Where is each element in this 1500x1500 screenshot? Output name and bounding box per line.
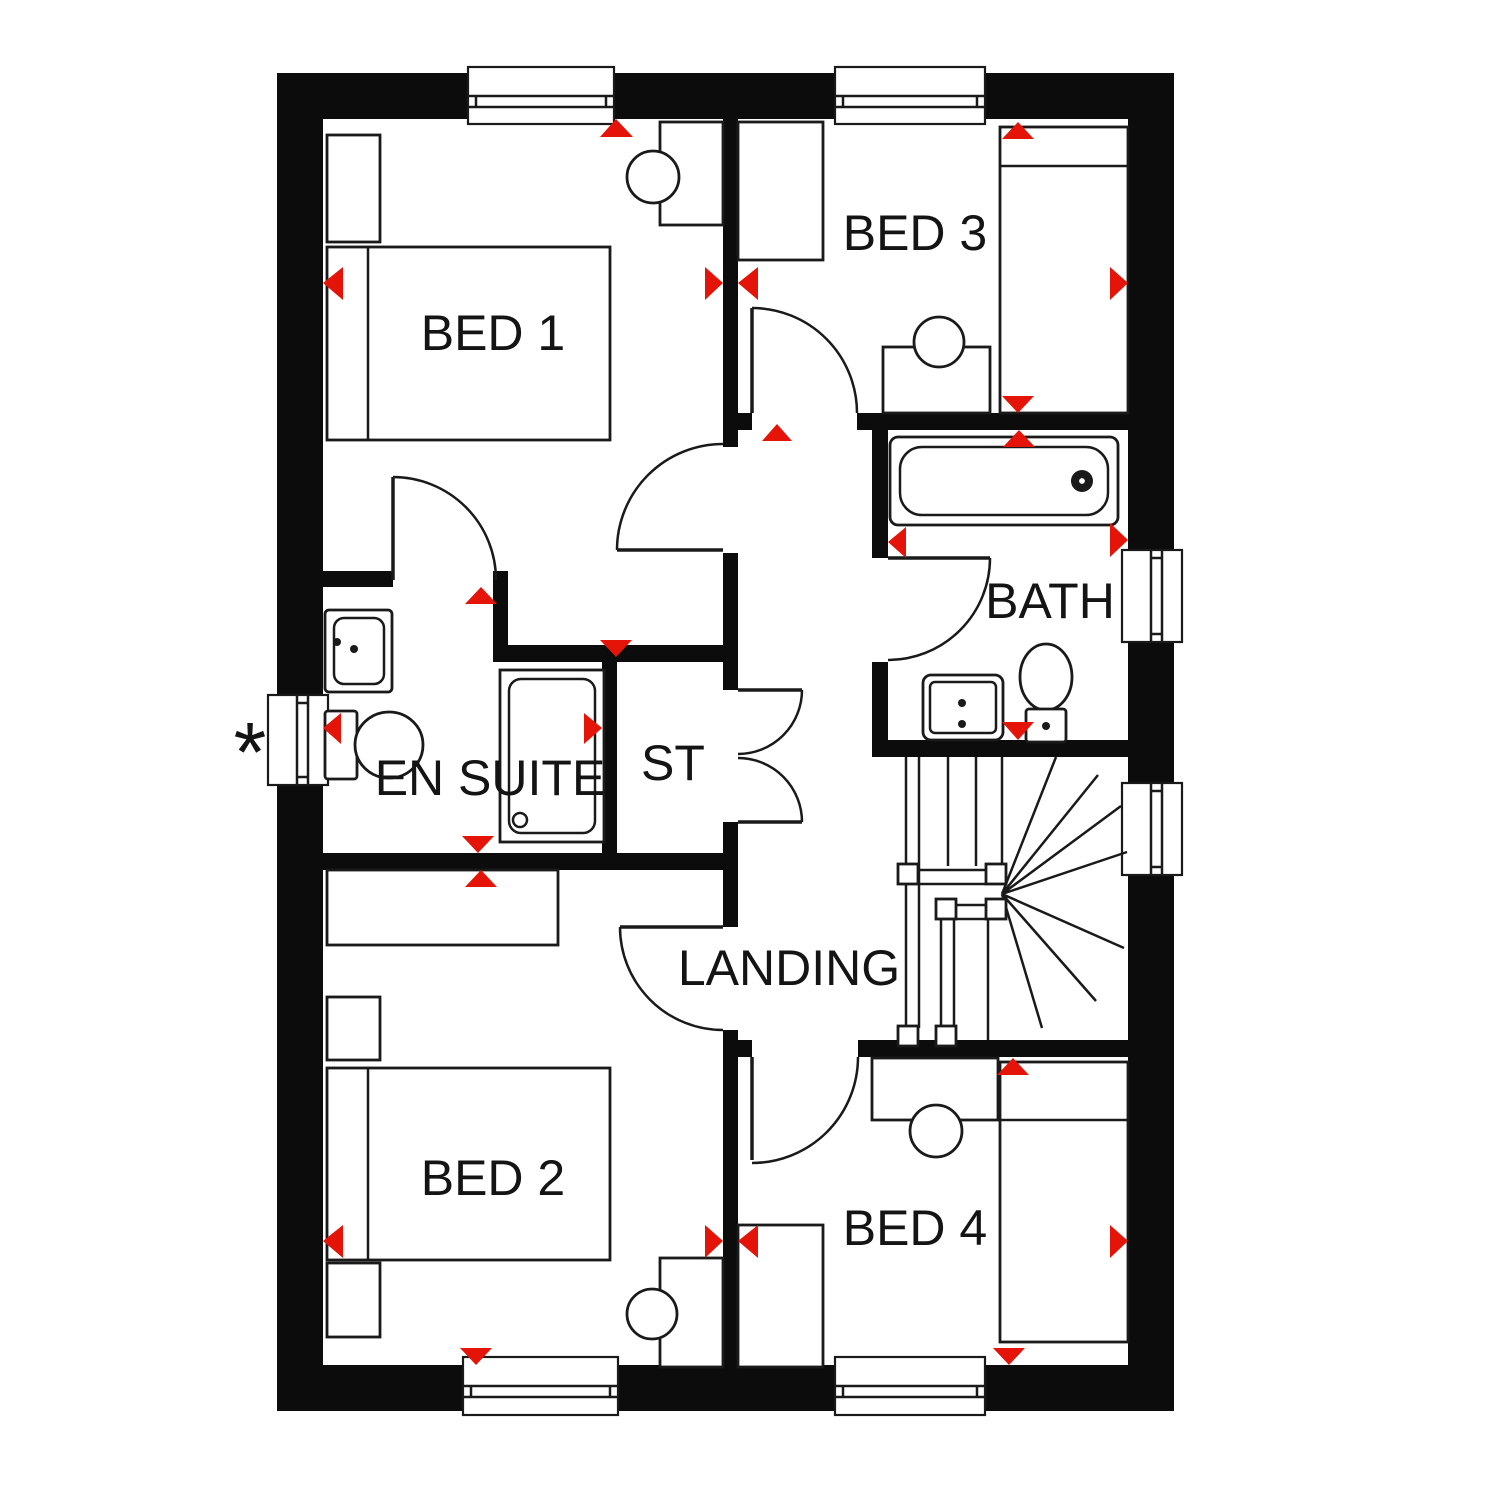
door-bed1 [617, 444, 723, 550]
bed4-bed [1000, 1062, 1128, 1342]
marker-left-icon [738, 267, 758, 300]
wall-right-lower [1128, 873, 1174, 1411]
wall-bath-left-upper [872, 430, 888, 558]
label-bed2: BED 2 [421, 1150, 566, 1206]
wall-ensuite-bottom [323, 853, 738, 870]
bed3-bed [1000, 127, 1128, 413]
label-landing: LANDING [678, 940, 900, 996]
window-bath [1122, 550, 1182, 642]
marker-down-icon [993, 1348, 1025, 1365]
label-store: ST [641, 735, 705, 791]
window-bed1 [468, 67, 614, 124]
bed1-wardrobe [327, 135, 380, 242]
window-bed3 [835, 67, 985, 124]
label-bed4: BED 4 [843, 1200, 988, 1256]
wall-bed4-top-stub [738, 1040, 752, 1057]
ensuite-basin [325, 610, 392, 692]
bath-vanity [923, 675, 1003, 740]
wall-right-mid [1128, 640, 1174, 785]
wall-central-c [723, 822, 738, 927]
stairs-handrail-upper [918, 870, 986, 884]
door-bed4 [752, 1057, 858, 1163]
window-ensuite [268, 695, 328, 785]
bed2-wardrobe [327, 870, 558, 945]
bed4-lamp [910, 1105, 962, 1157]
wall-central-d [723, 1030, 738, 1365]
wall-left-lower [277, 783, 323, 1411]
window-stairs [1122, 783, 1182, 875]
wall-top-mid [612, 73, 837, 119]
wall-bath-bottom [872, 740, 1128, 757]
door-bed3 [752, 308, 857, 413]
bed1-lamp [627, 151, 679, 203]
wall-central-b [723, 553, 738, 690]
bed2-lamp [627, 1289, 677, 1339]
stairs-newel-posts [898, 864, 1006, 1046]
marker-down-icon [462, 836, 494, 853]
stairs-handrail-mid [956, 905, 986, 919]
label-bed1: BED 1 [421, 305, 566, 361]
marker-up-icon [465, 587, 497, 604]
floor-plan: BED 1 BED 3 BATH EN SUITE ST LANDING BED… [0, 0, 1500, 1500]
wall-left-upper [277, 73, 323, 697]
wall-central-a [723, 119, 738, 447]
wall-bath-left-lower [872, 662, 888, 740]
bed3-wardrobe [738, 122, 823, 260]
door-store-upper [738, 690, 802, 754]
asterisk-annotation: * [234, 705, 267, 799]
wall-ensuite-top [323, 571, 393, 587]
marker-left-icon [888, 527, 906, 558]
wall-bed3-bath [857, 413, 1128, 430]
floor-plan-drawing: BED 1 BED 3 BATH EN SUITE ST LANDING BED… [0, 0, 1500, 1500]
window-bed2 [463, 1357, 618, 1415]
stairs-inner-string [941, 919, 954, 1026]
door-ensuite [393, 477, 496, 580]
stairs-treads-top [948, 757, 1002, 866]
door-store-lower [738, 758, 802, 822]
wall-right-upper [1128, 73, 1174, 552]
stairs-winder-treads [988, 757, 1127, 1040]
marker-up-icon [762, 424, 792, 441]
bed2-side-table-upper [327, 997, 380, 1060]
bed3-lamp [914, 317, 964, 367]
label-ensuite: EN SUITE [375, 750, 606, 806]
wall-bottom-mid [618, 1365, 837, 1411]
door-bath [888, 558, 990, 660]
marker-right-icon [705, 1225, 723, 1258]
label-bath: BATH [985, 573, 1115, 629]
marker-right-icon [705, 267, 723, 300]
bed2-side-table-lower [327, 1263, 380, 1337]
label-bed3: BED 3 [843, 205, 988, 261]
bathtub [890, 437, 1118, 525]
wall-bed3-bath-stub [738, 413, 752, 430]
stairs-left-string [906, 757, 919, 1028]
window-bed4 [835, 1357, 985, 1415]
staircase [898, 757, 1127, 1046]
